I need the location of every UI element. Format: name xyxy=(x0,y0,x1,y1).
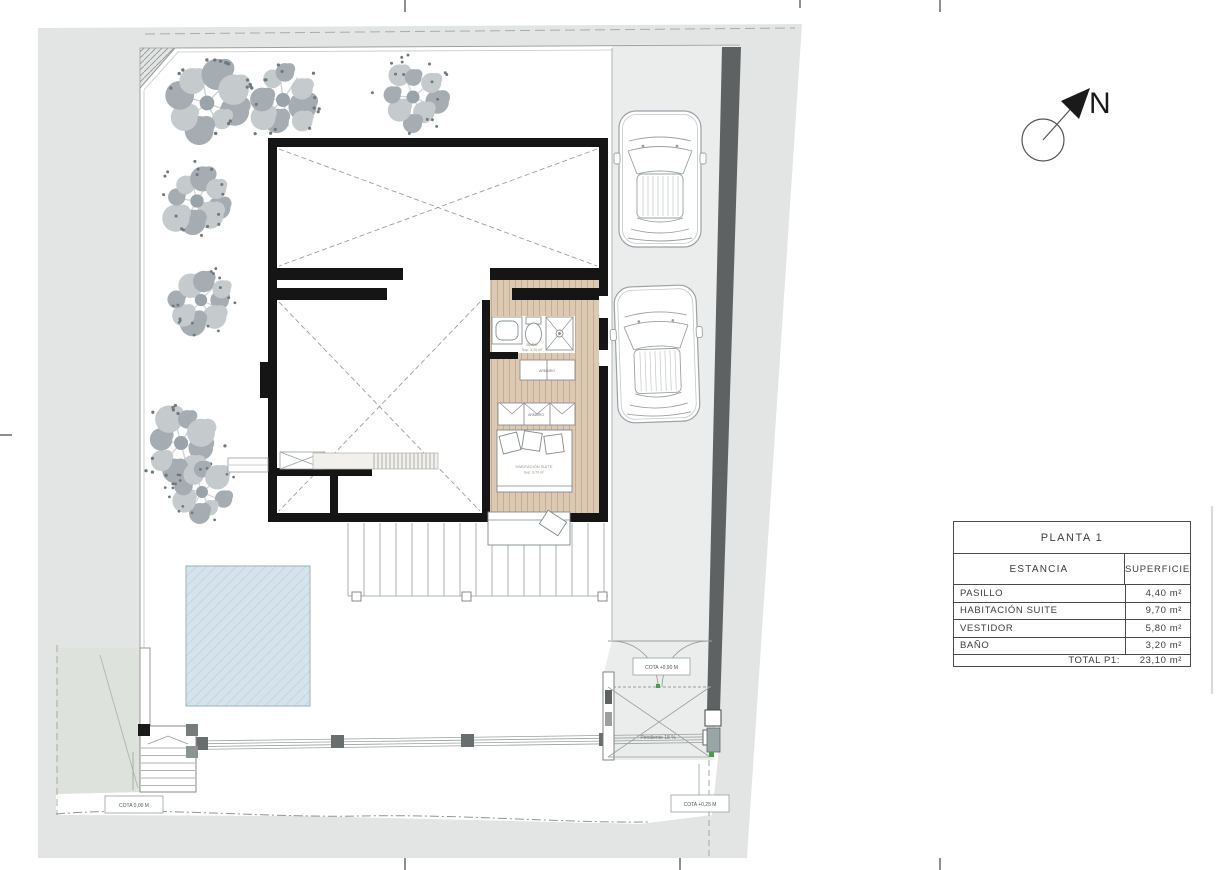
drawing-sheet: BAÑO Sup: 3,20 m² ARMARIO ARMARIO HABITA… xyxy=(0,0,1220,870)
sink-basin xyxy=(496,321,518,340)
table-row: PASILLO 4,40 m² xyxy=(954,585,1190,602)
room-name: VESTIDOR xyxy=(954,620,1126,636)
ramp-slope-label: Pendiente 18 % xyxy=(640,735,676,741)
room-area: 5,80 m² xyxy=(1126,620,1190,636)
room-area: 4,40 m² xyxy=(1126,585,1190,601)
svg-text:COTA +0,25 M: COTA +0,25 M xyxy=(684,802,717,808)
car-icon xyxy=(614,111,706,247)
total-label: TOTAL P1: xyxy=(954,655,1126,666)
interior-stair xyxy=(280,452,438,469)
wardrobe-label-1: ARMARIO xyxy=(539,369,555,373)
sun-lounger xyxy=(488,510,570,545)
suite-area-label: Sup: 9,70 m² xyxy=(524,471,545,475)
neighbor-plot xyxy=(56,648,140,794)
total-value: 23,10 m² xyxy=(1126,655,1190,666)
bathroom-area-label: Sup: 3,20 m² xyxy=(522,348,543,352)
table-row: VESTIDOR 5,80 m² xyxy=(954,620,1190,637)
north-arrow-icon: N xyxy=(1022,87,1111,161)
table-total-row: TOTAL P1: 23,10 m² xyxy=(954,655,1190,666)
table-row: BAÑO 3,20 m² xyxy=(954,638,1190,655)
room-name: BAÑO xyxy=(954,638,1126,654)
floor-plan-drawing: BAÑO Sup: 3,20 m² ARMARIO ARMARIO HABITA… xyxy=(0,0,1220,870)
room-name: PASILLO xyxy=(954,585,1126,601)
table-row: HABITACIÓN SUITE 9,70 m² xyxy=(954,603,1190,620)
room-name: HABITACIÓN SUITE xyxy=(954,603,1126,619)
gate-level-tag: COTA +0,90 M xyxy=(633,658,690,675)
svg-text:COTA +0,90 M: COTA +0,90 M xyxy=(645,665,678,671)
suite-label: HABITACIÓN SUITE xyxy=(515,464,552,469)
room-area: 3,20 m² xyxy=(1126,638,1190,654)
bathroom-label: BAÑO xyxy=(526,342,537,347)
column-header-estancia: ESTANCIA xyxy=(954,554,1125,584)
svg-text:COTA 0,00 M: COTA 0,00 M xyxy=(119,803,149,809)
area-table: PLANTA 1 ESTANCIA SUPERFICIE PASILLO 4,4… xyxy=(953,521,1191,667)
north-label: N xyxy=(1089,87,1111,120)
room-area: 9,70 m² xyxy=(1126,603,1190,619)
table-title: PLANTA 1 xyxy=(954,522,1190,554)
wardrobe-label-2: ARMARIO xyxy=(528,413,544,417)
garden-bench xyxy=(228,458,268,472)
bed xyxy=(497,430,572,492)
pool xyxy=(186,566,310,706)
column-header-superficie: SUPERFICIE xyxy=(1125,554,1190,584)
car-icon xyxy=(609,284,706,423)
